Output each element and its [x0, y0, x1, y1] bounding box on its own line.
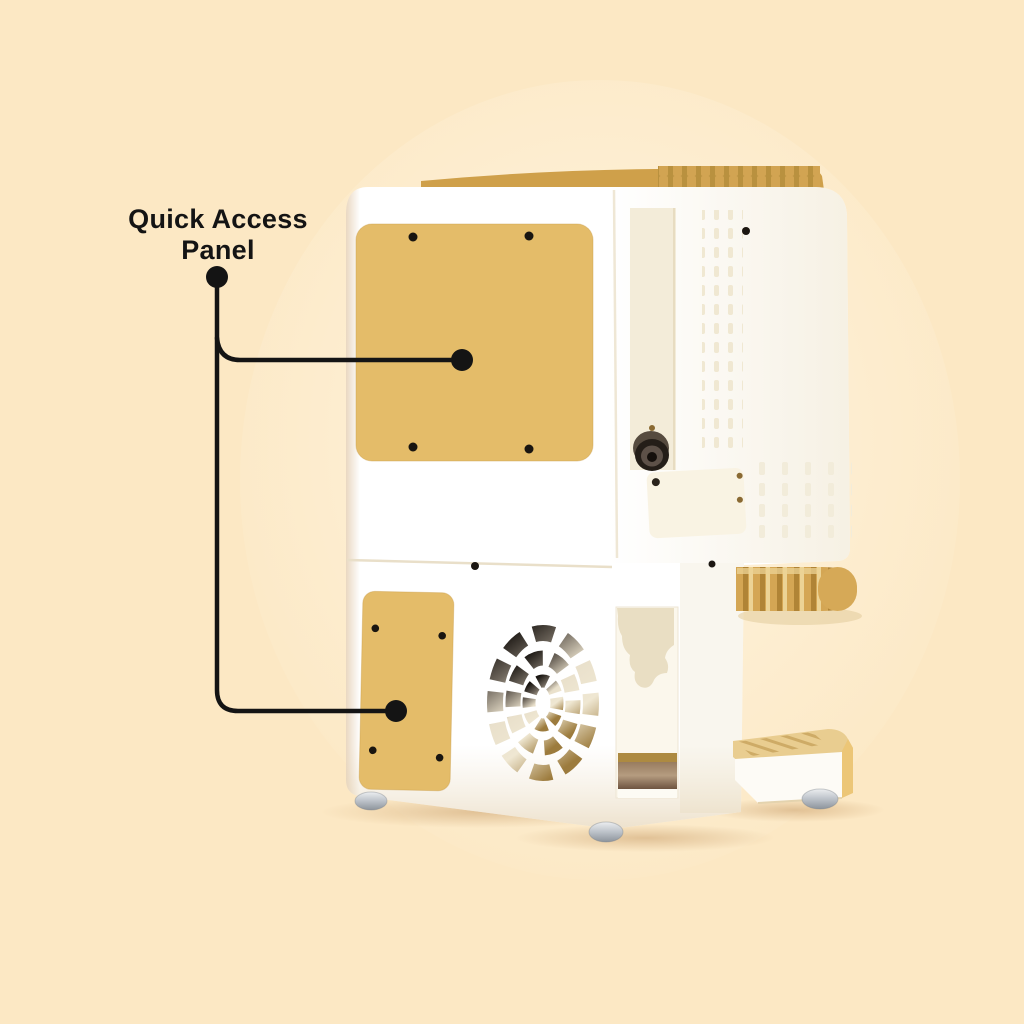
window-cutout [616, 607, 678, 798]
lower-access-panel [359, 591, 454, 791]
upper-access-panel [356, 224, 593, 461]
vent-grid-lower [753, 458, 852, 546]
callout-dot-lower-panel [385, 700, 407, 722]
foot-middle [589, 822, 623, 842]
vent-grid-upper [702, 210, 743, 448]
product-annotation-page: Quick Access Panel [0, 0, 1024, 1024]
drip-tray [733, 729, 853, 803]
product-image [0, 0, 1024, 1024]
foot-left [355, 792, 387, 810]
foot-right [802, 789, 838, 809]
service-panel [646, 468, 746, 539]
callout-dot-upper-panel [451, 349, 473, 371]
portafilter-handle [736, 567, 862, 625]
label-quick-access-panel: Quick Access Panel [105, 204, 331, 266]
callout-dot-label [206, 266, 228, 288]
